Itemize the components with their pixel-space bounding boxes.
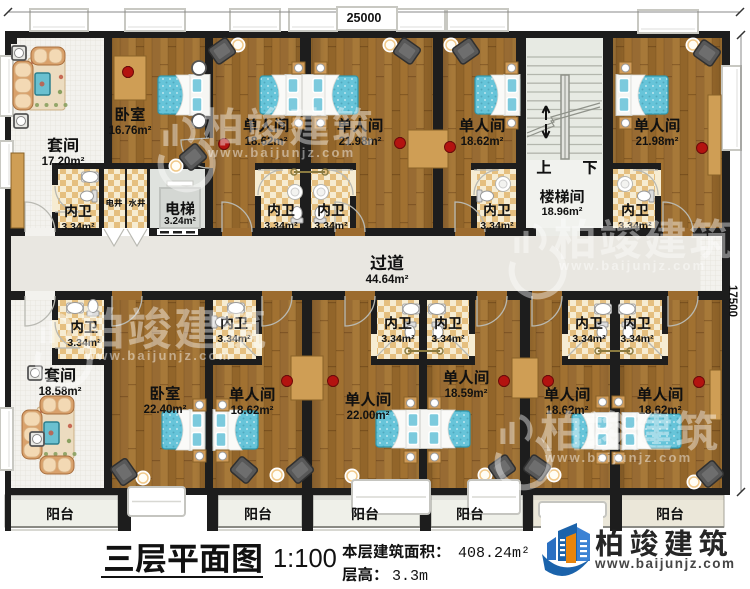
svg-text:18.96m²: 18.96m² (542, 206, 583, 218)
svg-text:25000: 25000 (347, 11, 382, 25)
svg-text:3.34m²: 3.34m² (314, 220, 348, 232)
svg-text:44.64m²: 44.64m² (366, 274, 409, 286)
svg-text:17.20m²: 17.20m² (42, 156, 85, 168)
svg-text:3.3m: 3.3m (392, 568, 428, 585)
svg-text:3.34m²: 3.34m² (572, 333, 606, 345)
svg-text:www.baijunjz.com: www.baijunjz.com (544, 450, 692, 465)
svg-text:18.62m²: 18.62m² (461, 136, 504, 148)
svg-text:408.24m²: 408.24m² (458, 545, 530, 562)
svg-text:22.40m²: 22.40m² (144, 404, 187, 416)
svg-text:21.98m²: 21.98m² (636, 136, 679, 148)
svg-text:www.baijunjz.com: www.baijunjz.com (594, 556, 736, 571)
svg-text:www.baijunjz.com: www.baijunjz.com (207, 145, 355, 160)
svg-text:www.baijunjz.com: www.baijunjz.com (558, 258, 706, 273)
svg-text:22.00m²: 22.00m² (347, 410, 390, 422)
svg-text:18.62m²: 18.62m² (231, 405, 274, 417)
svg-text:3.34m²: 3.34m² (61, 221, 95, 233)
svg-text:1:100: 1:100 (273, 545, 337, 573)
svg-text:3.34m²: 3.34m² (381, 333, 415, 345)
svg-text:18.59m²: 18.59m² (445, 388, 488, 400)
svg-text:3.24m²: 3.24m² (164, 216, 196, 227)
svg-text:16.76m²: 16.76m² (109, 125, 152, 137)
svg-text:3.34m²: 3.34m² (264, 220, 298, 232)
svg-text:3.34m²: 3.34m² (620, 333, 654, 345)
svg-text:17500: 17500 (726, 285, 738, 317)
svg-text:3.34m²: 3.34m² (480, 220, 514, 232)
svg-text:www.baijunjz.com: www.baijunjz.com (84, 348, 232, 363)
svg-text:3.34m²: 3.34m² (431, 333, 465, 345)
